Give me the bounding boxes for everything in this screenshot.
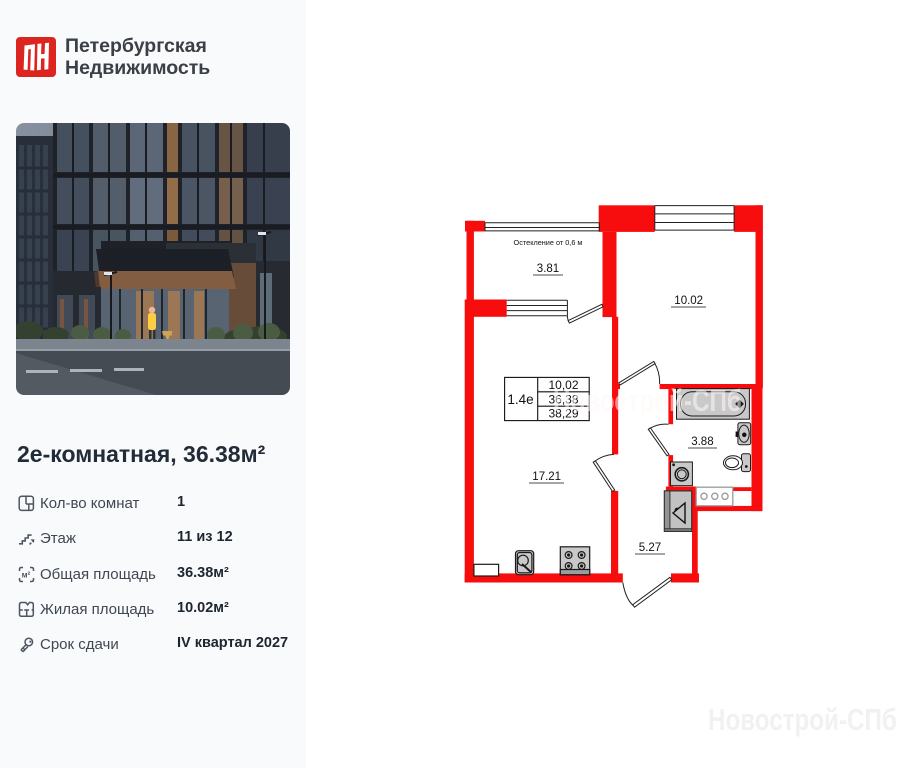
svg-text:м²: м²	[22, 571, 31, 580]
svg-text:3.88: 3.88	[691, 436, 713, 448]
svg-text:5.27: 5.27	[639, 542, 661, 554]
svg-text:1.4е: 1.4е	[507, 392, 533, 407]
svg-text:17.21: 17.21	[532, 471, 561, 483]
svg-text:3.81: 3.81	[537, 263, 559, 275]
svg-text:Остекление от 0,6 м: Остекление от 0,6 м	[514, 238, 583, 247]
svg-text:10.02: 10.02	[674, 295, 703, 307]
